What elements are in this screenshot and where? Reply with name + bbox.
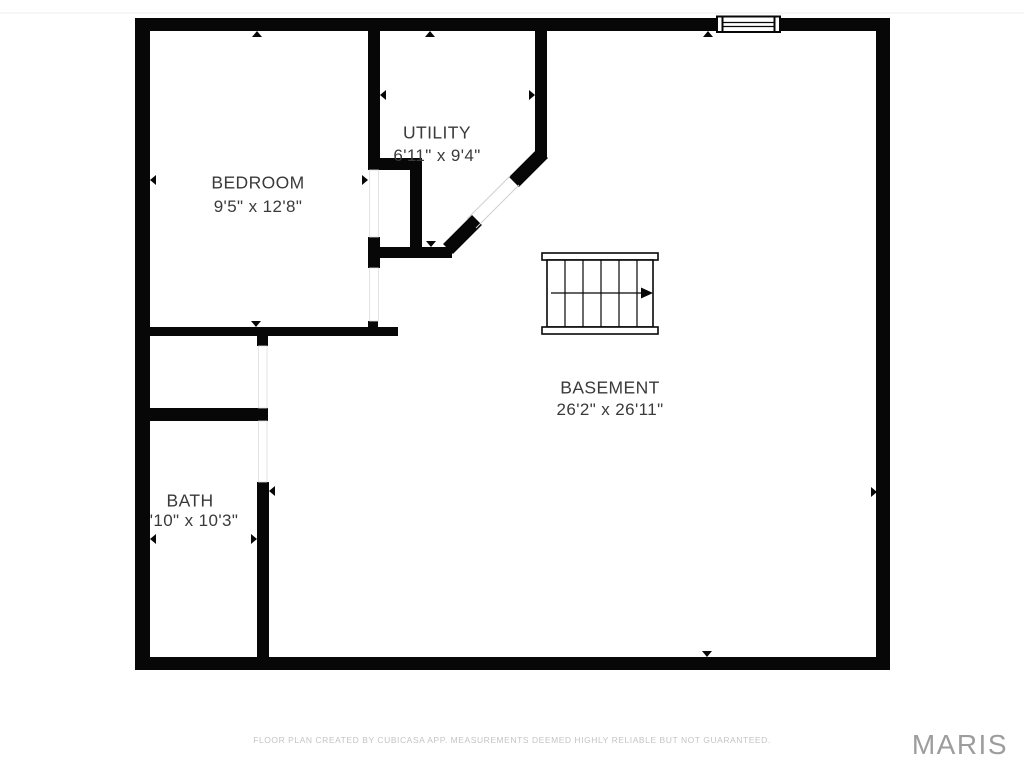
wall-outer-left [135,18,150,670]
wall-bedroom-right-stub [368,237,380,268]
wall-recess-right [410,170,422,258]
marker-bath-left-icon [150,534,156,544]
wall-hall-stub [257,336,268,346]
bedroom-dimensions: 9'5" x 12'8" [214,197,303,217]
marker-basement-top-icon [703,31,713,37]
disclaimer-text: FLOOR PLAN CREATED BY CUBICASA APP. MEAS… [0,735,1024,745]
bedroom-label: BEDROOM [211,173,304,194]
wall-bath-right [257,482,269,657]
marker-bedroom-right-icon [362,175,368,185]
wall-diagonal-upper [514,153,543,182]
door-bedroom-closet [370,170,379,237]
floorplan-canvas: BEDROOM 9'5" x 12'8" UTILITY 6'11" x 9'4… [0,0,1024,768]
wall-outer-bottom [135,657,890,670]
door-diagonal-line-2 [476,185,519,228]
wall-bedroom-bottom [150,327,398,336]
floorplan-drawing [0,0,1024,768]
marker-bedroom-left-icon [150,175,156,185]
door-bedroom [370,268,379,321]
bath-label: BATH [167,491,214,512]
wall-diagonal-lower [448,220,477,249]
basement-label: BASEMENT [560,378,659,399]
wall-bath-top [150,408,268,421]
stairs-icon [542,253,658,334]
marker-bath-right-icon [251,534,257,544]
wall-utility-right [535,31,547,157]
marker-basement-left-icon [269,486,275,496]
marker-utility-right-icon [529,90,535,100]
marker-utility-top-icon [425,31,435,37]
window-icon [717,17,780,33]
basement-dimensions: 26'2" x 26'11" [556,400,663,420]
marker-utility-bottom-icon [426,241,436,247]
wall-outer-right [876,18,890,670]
wall-door-jamb-top [368,321,378,328]
wall-utility-bottom [378,247,452,258]
bath-dimensions: '10" x 10'3" [150,511,239,531]
marker-basement-bottom-icon [702,651,712,657]
utility-label: UTILITY [403,123,471,144]
marker-bedroom-bottom-icon [251,321,261,327]
wall-bedroom-utility-divider [368,31,380,170]
door-diagonal-line-1 [467,176,510,219]
door-hall [259,346,268,408]
utility-dimensions: 6'11" x 9'4" [393,146,480,166]
maris-watermark: MARIS [912,729,1008,761]
door-bath [259,421,268,482]
marker-utility-left-icon [380,90,386,100]
marker-bedroom-top-icon [252,31,262,37]
